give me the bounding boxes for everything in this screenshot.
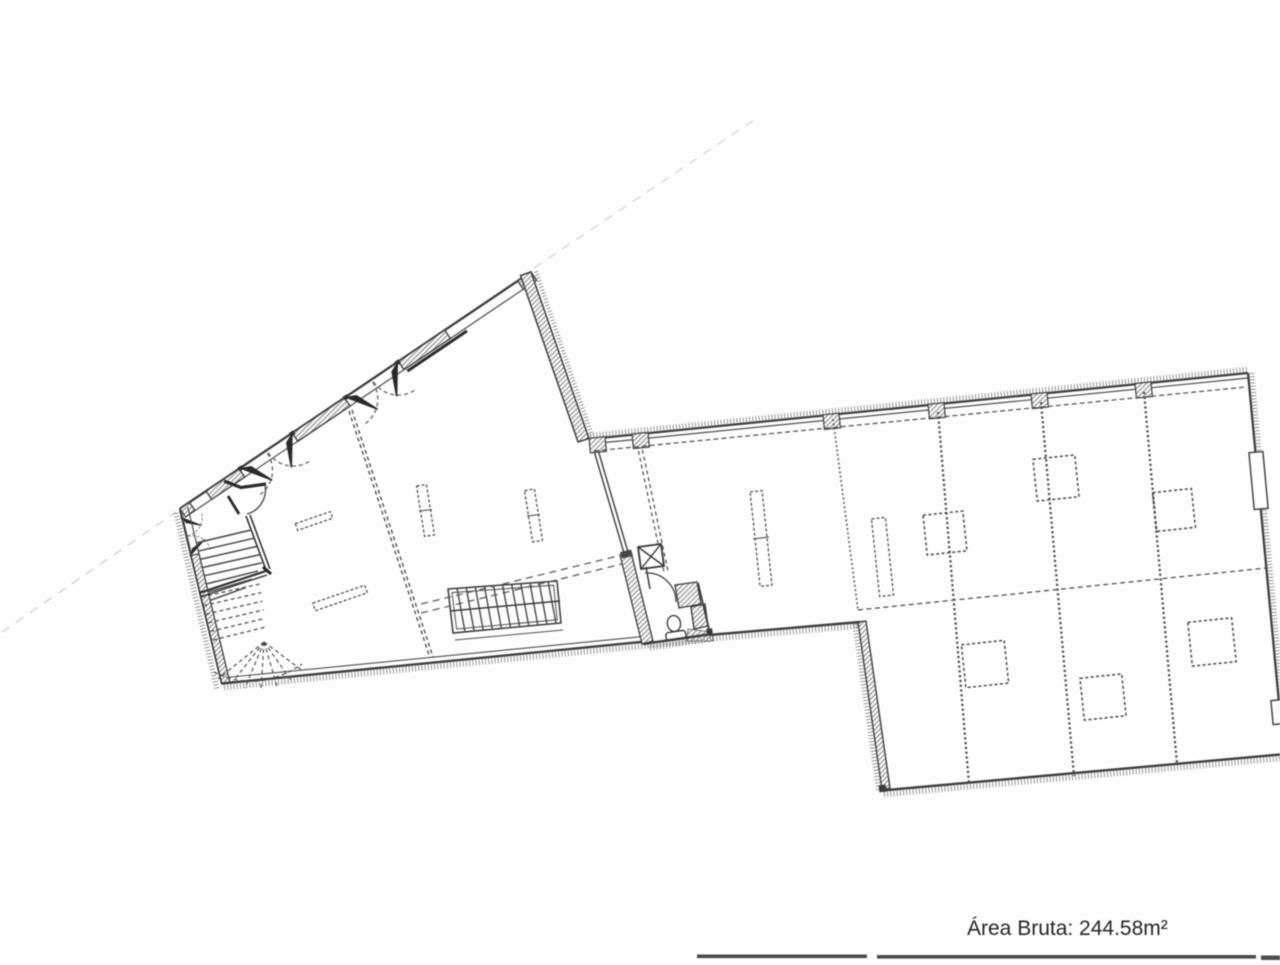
svg-text:Área Bruta: 244.58m²: Área Bruta: 244.58m² <box>967 917 1168 940</box>
